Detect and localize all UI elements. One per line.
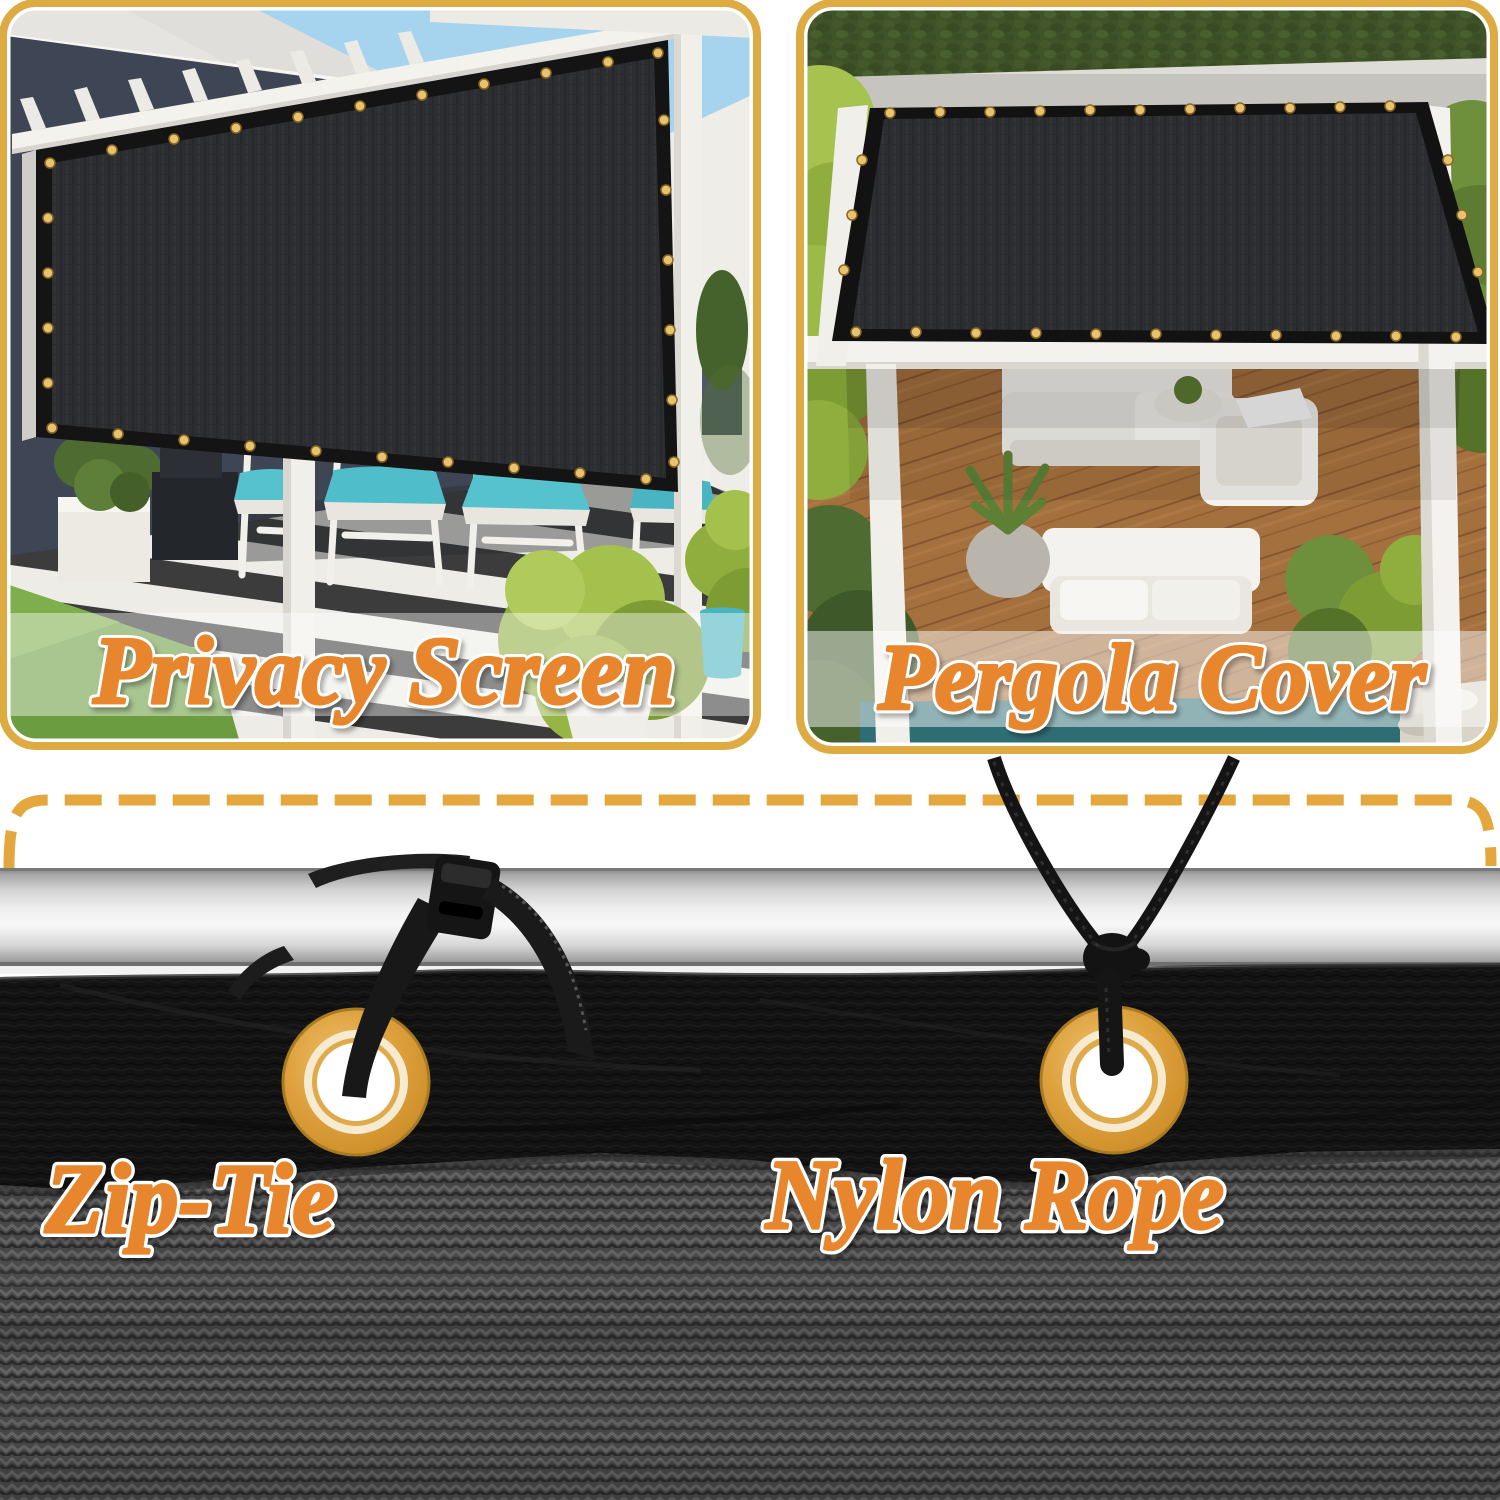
svg-text:Nylon Rope: Nylon Rope [765, 1139, 1224, 1250]
svg-text:Pergola Cover: Pergola Cover [877, 626, 1427, 730]
svg-text:Privacy Screen: Privacy Screen [92, 617, 675, 724]
svg-text:Zip-Tie: Zip-Tie [44, 1143, 335, 1254]
